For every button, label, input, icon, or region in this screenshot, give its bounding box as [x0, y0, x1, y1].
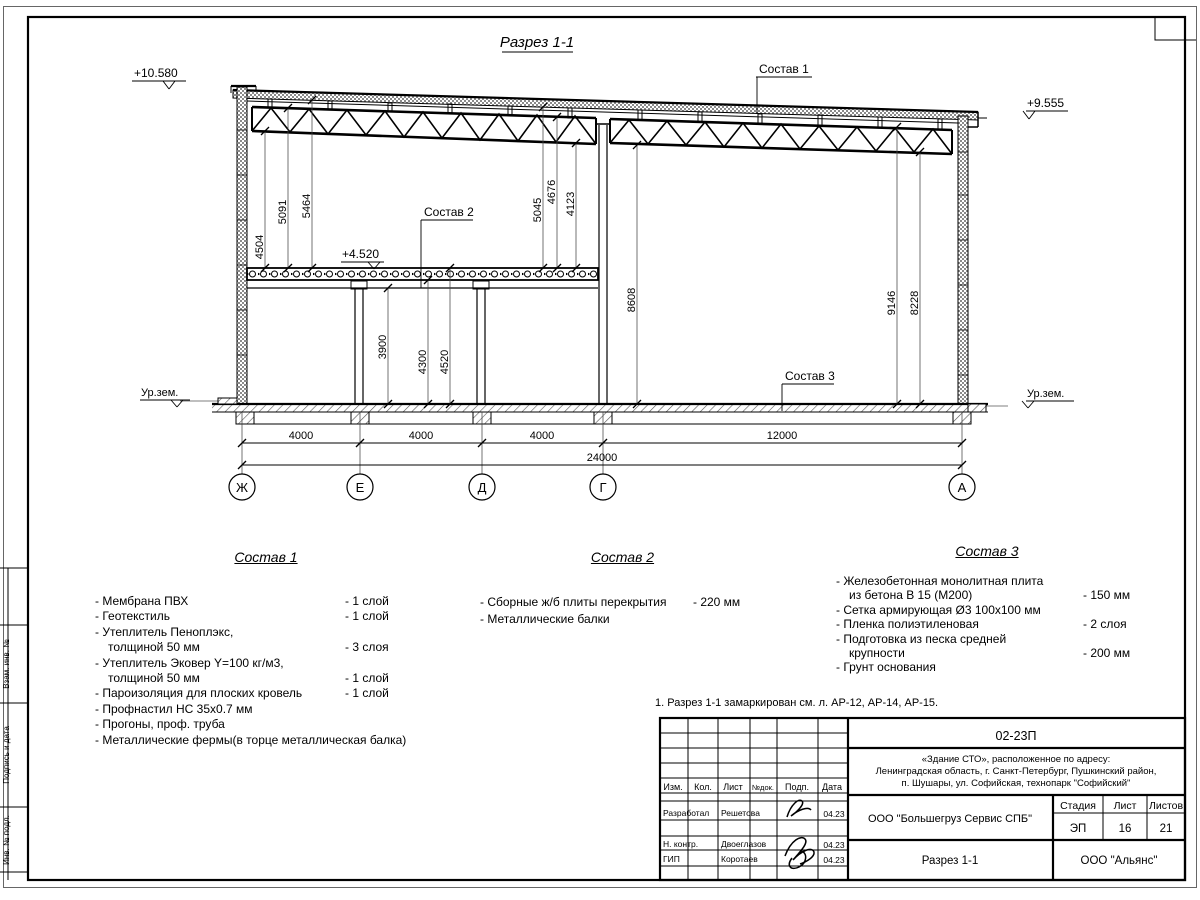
- total-dim: 24000: [587, 452, 618, 464]
- top-right-docbox: [1155, 17, 1196, 40]
- design-org: ООО "Альянс": [1081, 855, 1158, 867]
- row-date: 04.23: [823, 809, 845, 819]
- axis-bubble-label: А: [958, 480, 967, 495]
- composition-line: крупности- 200 мм: [836, 646, 1138, 660]
- drawing-sheet: Взам. инв. № Подпись и дата Инв. № подл.…: [0, 0, 1200, 900]
- elevation-label: +9.555: [1027, 96, 1064, 110]
- dim-label: 8228: [909, 291, 921, 315]
- composition-title: Состав 2: [480, 550, 765, 568]
- axis-bubble-label: Ж: [236, 480, 248, 495]
- grid-axes: Ж Е Д Г А: [229, 474, 975, 500]
- dim-label: 5045: [532, 198, 544, 222]
- signature-scribble: [787, 800, 811, 817]
- composition-title: Состав 1: [95, 550, 437, 568]
- composition-line: толщиной 50 мм- 1 слой: [95, 671, 437, 686]
- composition-line: - Сетка армирующая Ø3 100х100 мм: [836, 603, 1138, 617]
- left-wall: [231, 86, 256, 408]
- row-role: Разработал: [663, 808, 709, 818]
- section-drawing: Взам. инв. № Подпись и дата Инв. № подл.…: [0, 0, 1200, 900]
- composition-line: - Утеплитель Пеноплэкс,: [95, 625, 437, 640]
- ground-floor: [180, 398, 1008, 424]
- ground-level-label: Ур.зем.: [1027, 388, 1064, 400]
- frame-label-vzam: Взам. инв. №: [2, 639, 11, 689]
- axis-bubble-label: Е: [356, 480, 365, 495]
- composition-line: - Металлические фермы(в торце металличес…: [95, 733, 437, 748]
- col-header-data: Дата: [822, 782, 842, 792]
- composition-line: - Мембрана ПВХ- 1 слой: [95, 594, 437, 609]
- row-role: ГИП: [663, 854, 680, 864]
- object-address-line: «Здание СТО», расположенное по адресу:: [922, 754, 1111, 765]
- middle-wall: [596, 124, 610, 404]
- axis-bubble-label: Г: [599, 480, 606, 495]
- composition-line: - Сборные ж/б плиты перекрытия- 220 мм: [480, 594, 765, 611]
- col-header-list: Лист: [723, 782, 743, 792]
- span-dim: 12000: [767, 430, 798, 442]
- composition-title: Состав 3: [836, 544, 1138, 562]
- composition-line: - Профнастил НС 35х0.7 мм: [95, 702, 437, 717]
- dim-label: 9146: [886, 291, 898, 315]
- dim-label: 4504: [254, 235, 266, 259]
- columns: [351, 281, 489, 404]
- horizontal-dimensions: 4000 4000 4000 12000 24000 Ж Е Д Г А: [229, 412, 975, 500]
- sheet-value: 16: [1119, 823, 1132, 835]
- sheet-name: Разрез 1-1: [922, 855, 978, 867]
- col-header-podp: Подп.: [785, 782, 809, 792]
- composition-block-1: Состав 1 - Мембрана ПВХ- 1 слой - Геотек…: [95, 550, 437, 748]
- leader-label-sostav2: Состав 2: [424, 205, 474, 219]
- composition-line: из бетона В 15 (М200)- 150 мм: [836, 588, 1138, 602]
- plinth-left: [218, 398, 237, 404]
- foundation-pad: [236, 412, 254, 424]
- dim-label: 5464: [301, 194, 313, 218]
- dim-label: 4520: [439, 350, 451, 374]
- dim-label: 8608: [626, 288, 638, 312]
- floor-slab: [247, 268, 598, 288]
- frame-label-inv: Инв. № подл.: [2, 815, 11, 865]
- stage-value: ЭП: [1070, 823, 1087, 835]
- composition-line: - Грунт основания: [836, 660, 1138, 674]
- object-address-line: Ленинградская область, г. Санкт-Петербур…: [876, 766, 1157, 777]
- sheet-header: Лист: [1114, 800, 1137, 812]
- composition-line: - Пароизоляция для плоских кровель- 1 сл…: [95, 686, 437, 701]
- row-date: 04.23: [823, 840, 845, 850]
- sheets-value: 21: [1160, 823, 1173, 835]
- dim-label: 4300: [417, 350, 429, 374]
- elevation-label: +10.580: [134, 66, 178, 80]
- composition-line: - Подготовка из песка средней: [836, 632, 1138, 646]
- building-section: [180, 86, 1008, 424]
- axis-bubble-label: Д: [478, 480, 487, 495]
- elevation-label: +4.520: [342, 247, 379, 261]
- composition-line: - Утеплитель Эковер Y=100 кг/м3,: [95, 656, 437, 671]
- leader-label-sostav1: Состав 1: [759, 62, 809, 76]
- composition-line: - Пленка полиэтиленовая- 2 слоя: [836, 617, 1138, 631]
- stage-header: Стадия: [1060, 800, 1096, 812]
- dim-label: 3900: [377, 335, 389, 359]
- right-wall: [958, 116, 968, 408]
- composition-line: толщиной 50 мм- 3 слоя: [95, 640, 437, 655]
- composition-block-2: Состав 2 - Сборные ж/б плиты перекрытия-…: [480, 550, 765, 627]
- composition-line: - Прогоны, проф. труба: [95, 717, 437, 732]
- dim-label: 4123: [565, 192, 577, 216]
- col-header-ndok: №док.: [752, 783, 774, 792]
- doc-number: 02-23П: [996, 729, 1037, 743]
- row-name: Коротаев: [721, 854, 758, 864]
- col-header-izm: Изм.: [663, 782, 682, 792]
- drawing-title: Разрез 1-1: [500, 34, 574, 52]
- composition-line: - Геотекстиль- 1 слой: [95, 609, 437, 624]
- sheets-header: Листов: [1149, 800, 1184, 812]
- row-name: Двоеглазов: [721, 839, 767, 849]
- title-block: 02-23П «Здание СТО», расположенное по ад…: [660, 718, 1185, 880]
- composition-line: - Железобетонная монолитная плита: [836, 574, 1138, 588]
- row-name: Решетова: [721, 808, 760, 818]
- dim-label: 5091: [277, 200, 289, 224]
- row-role: Н. контр.: [663, 839, 698, 849]
- col-header-kol: Кол.: [694, 782, 712, 792]
- contractor-company: ООО "Большегруз Сервис СПБ": [868, 813, 1032, 825]
- composition-line: - Металлические балки: [480, 611, 765, 628]
- signature-scribble: [785, 838, 814, 869]
- span-dim: 4000: [409, 430, 433, 442]
- ground-level-label: Ур.зем.: [141, 387, 178, 399]
- object-address-line: п. Шушары, ул. Софийская, технопарк "Соф…: [902, 778, 1131, 789]
- span-dim: 4000: [530, 430, 554, 442]
- span-dim: 4000: [289, 430, 313, 442]
- plinth-right: [968, 404, 986, 412]
- frame-label-podpis: Подпись и дата: [2, 726, 11, 784]
- composition-block-3: Состав 3 - Железобетонная монолитная пли…: [836, 544, 1138, 675]
- leader-label-sostav3: Состав 3: [785, 369, 835, 383]
- row-date: 04.23: [823, 855, 845, 865]
- section-title: Разрез 1-1: [500, 34, 574, 51]
- dim-label: 4676: [546, 180, 558, 204]
- note-text: 1. Разрез 1-1 замаркирован см. л. АР-12,…: [655, 697, 938, 709]
